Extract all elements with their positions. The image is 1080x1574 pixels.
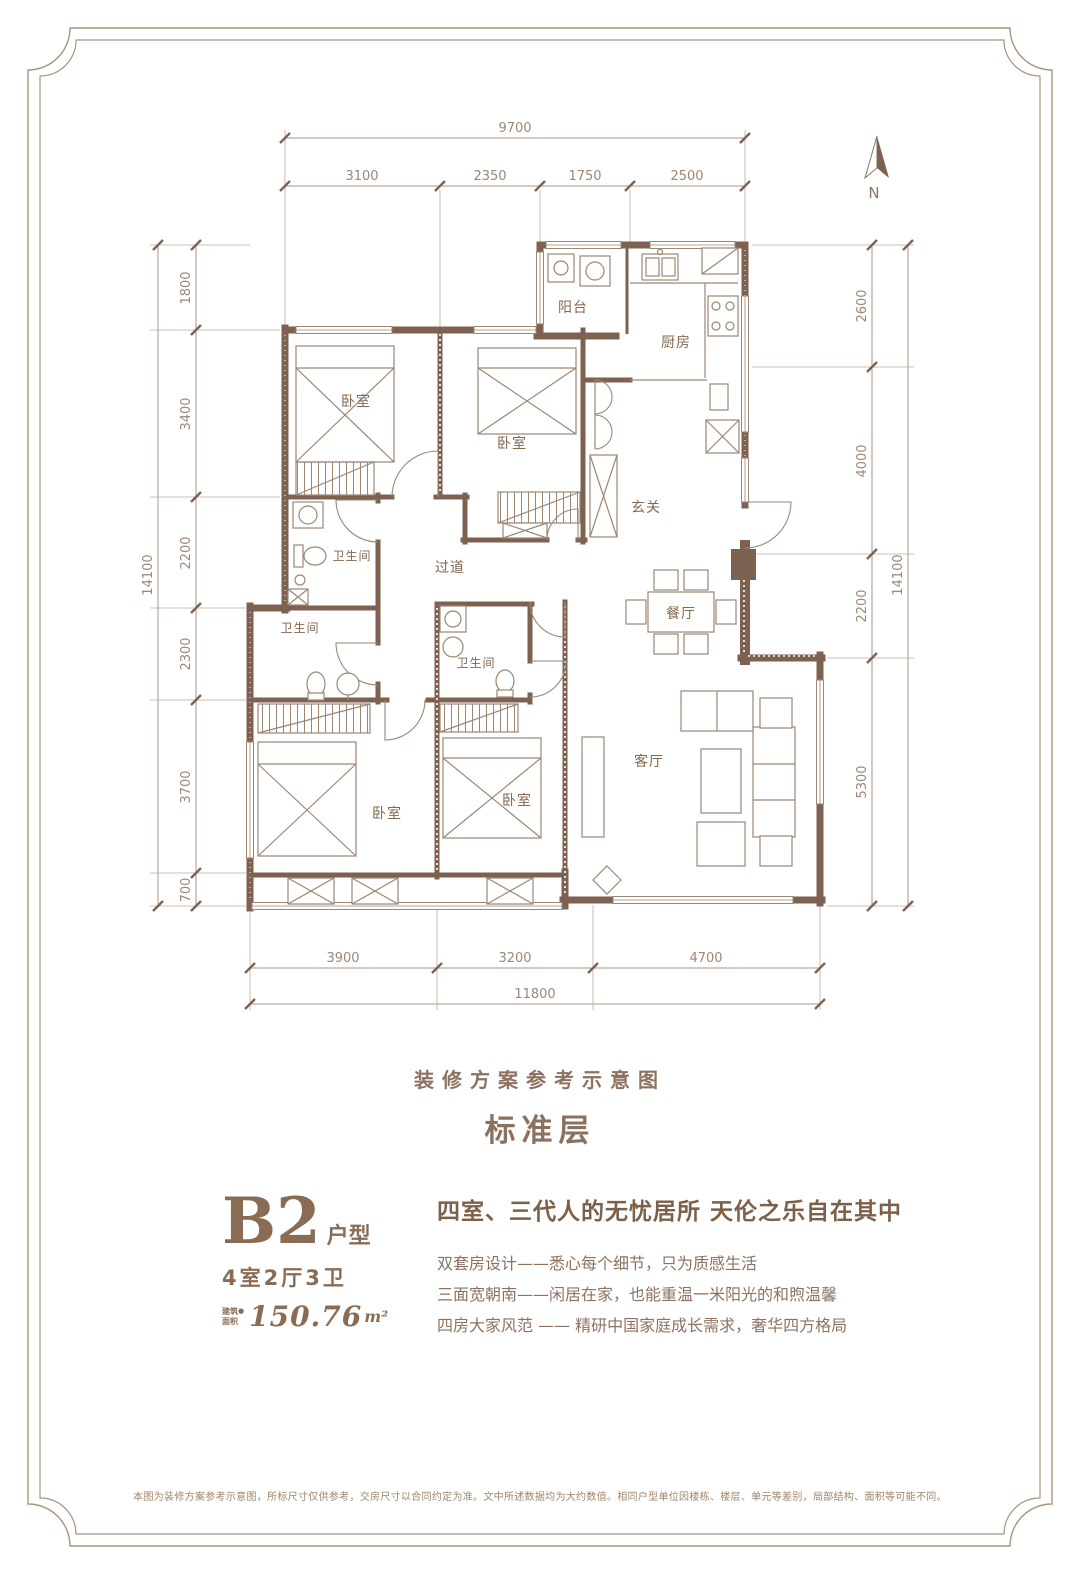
disclaimer: 本图为装修方案参考示意图，所标尺寸仅供参考，交房尺寸以合同约定为准。文中所述数据… <box>0 1488 1080 1503</box>
room-label-bath-2: 卫生间 <box>280 621 319 635</box>
wardrobe-icon <box>440 704 518 732</box>
dim-left-seg-5: 3700 <box>179 770 194 803</box>
washer-icon <box>548 254 610 286</box>
bedroom3-door-icon <box>385 700 425 740</box>
area-unit: m² <box>364 1307 388 1326</box>
bath1-door-icon <box>336 500 378 542</box>
room-label-bedroom-2: 卧室 <box>497 435 527 452</box>
unit-info: B2 户型 4室2厅3卫 建筑● 面积 150.76 m² <box>222 1190 388 1333</box>
fridge-icon <box>706 384 739 453</box>
floor-plan-page: N 9700 3100 2350 1750 2500 141 <box>0 0 1080 1574</box>
room-label-bath-3: 卫生间 <box>456 656 495 670</box>
dim-left-seg-2: 3400 <box>179 397 194 430</box>
bed-icon <box>258 742 356 856</box>
room-label-balcony: 阳台 <box>558 300 588 316</box>
selling-points: 四室、三代人的无忧居所 天伦之乐自在其中 双套房设计——悉心每个细节，只为质感生… <box>437 1192 927 1341</box>
dim-right-seg-3: 2200 <box>855 589 870 622</box>
bed-icon <box>478 348 576 434</box>
dim-right-total: 14100 <box>891 554 906 595</box>
dim-bottom-total: 11800 <box>514 987 555 1002</box>
stove-icon <box>708 296 738 336</box>
dim-top-seg-3: 1750 <box>568 169 601 184</box>
room-label-kitchen: 厨房 <box>661 335 691 351</box>
selling-point-item: 三面宽朝南——闲居在家，也能重温一米阳光的和煦温馨 <box>437 1279 927 1310</box>
bedroom1-door-icon <box>392 451 438 497</box>
dim-bottom-seg-1: 3900 <box>326 951 359 966</box>
unit-layout: 4室2厅3卫 <box>222 1262 388 1292</box>
dim-left-seg-1: 1800 <box>179 271 194 304</box>
selling-points-headline: 四室、三代人的无忧居所 天伦之乐自在其中 <box>437 1192 927 1226</box>
dim-left-seg-3: 2200 <box>179 536 194 569</box>
unit-code: B2 <box>222 1190 321 1254</box>
coffee-table-icon <box>701 749 741 813</box>
scheme-note: 装修方案参考示意图 <box>0 1064 1080 1093</box>
dim-left-seg-6: 700 <box>179 878 194 903</box>
room-label-bedroom-3: 卧室 <box>372 805 402 822</box>
wardrobe-icon <box>498 492 580 538</box>
area-label: 建筑● 面积 <box>222 1307 244 1327</box>
unit-area: 建筑● 面积 150.76 m² <box>222 1300 388 1333</box>
bay-box-icon <box>288 878 533 904</box>
dim-top-seg-1: 3100 <box>345 169 378 184</box>
room-label-dining: 餐厅 <box>666 606 696 622</box>
bath3-door-icon <box>530 661 566 697</box>
tv-cabinet-icon <box>582 737 604 837</box>
plan-captions: 装修方案参考示意图 标准层 <box>0 1064 1080 1150</box>
dim-bottom-seg-2: 3200 <box>498 951 531 966</box>
room-label-corridor: 过道 <box>435 560 465 576</box>
compass-label: N <box>868 184 879 202</box>
entry-door-icon <box>745 502 791 548</box>
toilet-icon <box>440 606 514 697</box>
unit-code-suffix: 户型 <box>327 1218 371 1250</box>
room-label-bedroom-4: 卧室 <box>502 792 532 809</box>
room-label-foyer: 玄关 <box>631 499 661 516</box>
dim-right-seg-2: 4000 <box>855 444 870 477</box>
area-value: 150.76 <box>249 1300 362 1333</box>
dim-top-seg-4: 2500 <box>670 169 703 184</box>
foyer-closet-icon <box>595 380 612 449</box>
toilet-icon <box>293 502 326 585</box>
room-label-bedroom-1: 卧室 <box>341 393 371 410</box>
wardrobe-icon <box>258 704 370 733</box>
wardrobe-icon <box>296 462 374 495</box>
floor-label: 标准层 <box>0 1105 1080 1150</box>
dim-left-total: 14100 <box>141 554 156 595</box>
dot-icon: ● <box>238 1307 244 1315</box>
dim-left-seg-4: 2300 <box>179 637 194 670</box>
dim-top-total: 9700 <box>498 121 531 136</box>
dim-top-seg-2: 2350 <box>473 169 506 184</box>
dim-bottom-seg-3: 4700 <box>689 951 722 966</box>
plant-icon <box>593 866 621 894</box>
selling-point-item: 四房大家风范 —— 精研中国家庭成长需求，奢华四方格局 <box>437 1310 927 1341</box>
bed-icon <box>443 738 541 838</box>
bedroom4-door-icon <box>530 602 565 637</box>
selling-point-item: 双套房设计——悉心每个细节，只为质感生活 <box>437 1248 927 1279</box>
dim-right-seg-4: 5300 <box>855 765 870 798</box>
room-label-bath-1: 卫生间 <box>332 549 371 563</box>
dim-right-seg-1: 2600 <box>855 289 870 322</box>
shoe-cabinet-icon <box>590 455 617 537</box>
room-label-living: 客厅 <box>634 753 664 770</box>
north-arrow-icon: N <box>865 136 889 202</box>
